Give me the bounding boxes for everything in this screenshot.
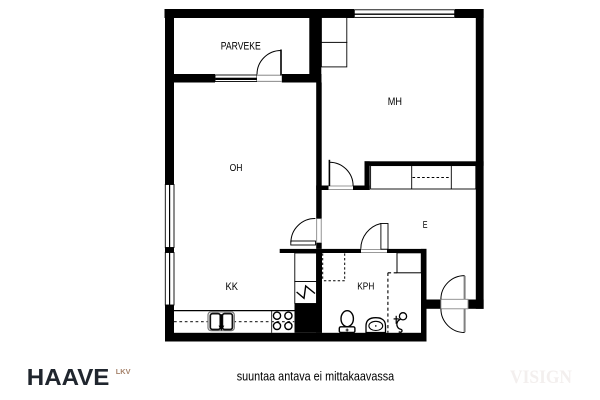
svg-text:OH: OH: [230, 163, 243, 174]
svg-text:LKV: LKV: [116, 367, 132, 376]
svg-text:VISIGN: VISIGN: [510, 367, 572, 388]
svg-text:KK: KK: [226, 281, 239, 293]
svg-text:E: E: [423, 220, 428, 231]
svg-text:MH: MH: [388, 96, 402, 108]
svg-text:PARVEKE: PARVEKE: [221, 41, 261, 53]
svg-text:KPH: KPH: [357, 281, 374, 292]
svg-text:suuntaa antava ei mittakaavass: suuntaa antava ei mittakaavassa: [237, 369, 395, 383]
svg-text:HAAVE: HAAVE: [27, 364, 110, 390]
